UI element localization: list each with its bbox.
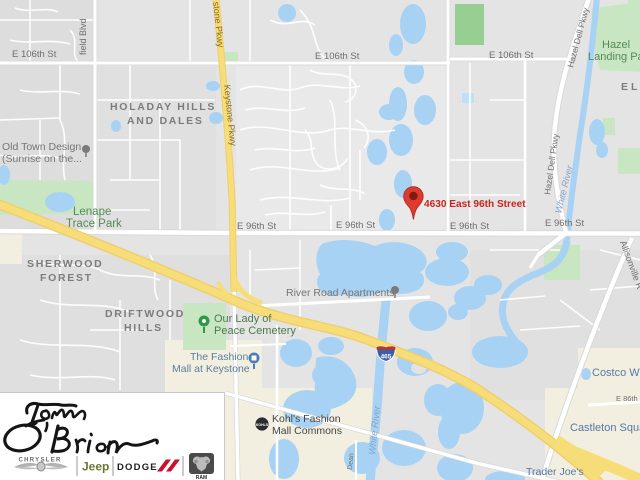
svg-text:DODGE: DODGE xyxy=(117,462,158,473)
svg-text:Old Town Design: Old Town Design xyxy=(2,141,81,153)
svg-text:465: 465 xyxy=(381,354,392,361)
svg-text:Landing Par: Landing Par xyxy=(588,51,640,63)
svg-text:SHERWOOD: SHERWOOD xyxy=(27,258,103,270)
svg-text:Lenape: Lenape xyxy=(73,206,111,218)
svg-text:Trace Park: Trace Park xyxy=(66,218,122,230)
svg-text:Costco Wh: Costco Wh xyxy=(592,367,640,379)
svg-text:The Fashion: The Fashion xyxy=(190,351,249,363)
svg-text:E 86th St: E 86th St xyxy=(616,394,640,403)
svg-text:Trader Joe's: Trader Joe's xyxy=(526,466,584,478)
svg-text:River Road Apartments: River Road Apartments xyxy=(286,287,395,299)
svg-text:field Blvd: field Blvd xyxy=(78,18,88,55)
svg-text:E 96th St: E 96th St xyxy=(450,221,489,232)
svg-text:Hazel: Hazel xyxy=(602,39,630,51)
svg-text:KOHLS: KOHLS xyxy=(256,423,269,427)
svg-text:(Sunrise on the...: (Sunrise on the... xyxy=(2,153,82,165)
svg-text:E 96th St: E 96th St xyxy=(336,220,375,231)
svg-text:E 96th St: E 96th St xyxy=(237,221,276,232)
svg-text:RAM: RAM xyxy=(196,475,207,480)
svg-text:4630 East 96th Street: 4630 East 96th Street xyxy=(424,199,526,210)
svg-text:Castleton Squar: Castleton Squar xyxy=(570,422,640,434)
svg-text:Mall Commons: Mall Commons xyxy=(272,425,342,437)
svg-text:HOLADAY HILLS: HOLADAY HILLS xyxy=(110,101,216,113)
svg-text:Kohl's Fashion: Kohl's Fashion xyxy=(272,413,341,425)
svg-text:E 106th St: E 106th St xyxy=(315,51,360,62)
svg-text:Dean: Dean xyxy=(347,453,355,470)
svg-text:E 96th St: E 96th St xyxy=(545,218,584,229)
svg-text:Jeep: Jeep xyxy=(82,460,109,474)
svg-text:Mall at Keystone: Mall at Keystone xyxy=(172,363,250,375)
svg-text:AND DALES: AND DALES xyxy=(127,115,204,127)
svg-text:HILLS: HILLS xyxy=(124,322,163,334)
svg-text:DRIFTWOOD: DRIFTWOOD xyxy=(105,308,185,320)
svg-text:FOREST: FOREST xyxy=(40,272,93,284)
svg-text:Our Lady of: Our Lady of xyxy=(214,313,272,325)
svg-text:Peace Cemetery: Peace Cemetery xyxy=(214,325,296,337)
svg-text:E 106th St: E 106th St xyxy=(489,50,534,61)
svg-text:E 106th St: E 106th St xyxy=(12,49,57,60)
svg-text:EL: EL xyxy=(621,81,640,93)
